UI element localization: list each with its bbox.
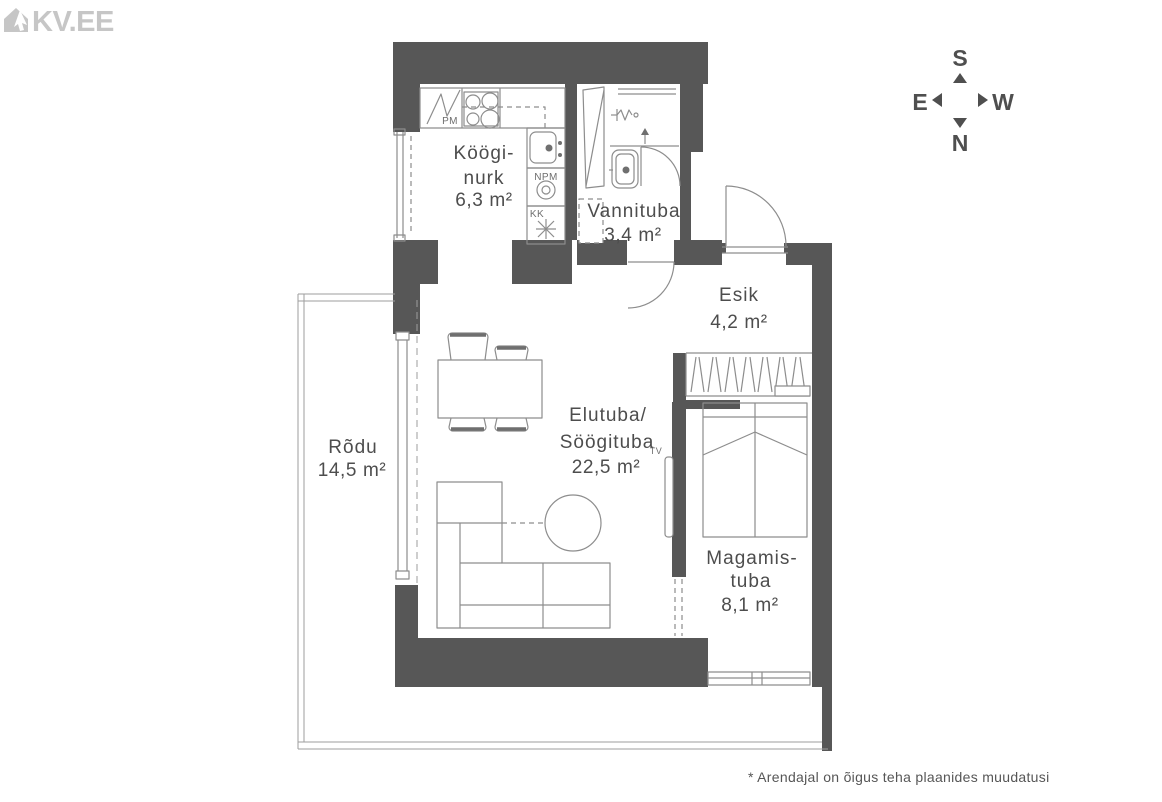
wall-living-bedroom-divider [672, 402, 686, 577]
hallway-label: Esik [719, 285, 759, 306]
balcony-door [396, 332, 409, 579]
bathroom-label: Vannituba [587, 201, 680, 222]
bedroom-sliding-opening [675, 579, 682, 636]
wall-bed-headboard-strip [677, 400, 740, 409]
fridge-snowflake-icon [536, 219, 556, 239]
disclaimer-text: * Arendajal on õigus teha plaanides muud… [748, 769, 1049, 785]
fridge-label: KK [530, 209, 544, 220]
balcony-label: Rõdu [328, 437, 377, 458]
wall-top [393, 42, 708, 84]
house-cursor-icon [4, 8, 28, 32]
bedroom-area: 8,1 m² [721, 595, 778, 616]
dishwasher-symbol [537, 181, 555, 199]
compass-south-label: S [952, 45, 967, 71]
entry-door-jamb-right [784, 243, 791, 253]
wall-living-west-upper [393, 284, 420, 334]
compass-east-label: E [912, 89, 927, 115]
compass-west-label: W [992, 89, 1014, 115]
dishwasher-label: NPM [534, 172, 557, 183]
wardrobe-shelf [775, 386, 810, 396]
wardrobe [686, 353, 812, 396]
kitchen-area: 6,3 m² [455, 190, 512, 211]
tv-panel [665, 457, 673, 537]
bed [703, 403, 807, 537]
chair [448, 333, 488, 360]
wall-bath-east-upper [680, 84, 703, 152]
wall-bath-east-lower [680, 152, 691, 243]
floorplan-svg: KV.EE [0, 0, 1162, 802]
wall-kitchen-south [512, 240, 572, 284]
bathroom-doorway-arc [628, 262, 674, 308]
balcony-area: 14,5 m² [318, 460, 387, 481]
entry-door-jamb-left [719, 243, 726, 253]
washing-machine-label: PM [442, 116, 458, 127]
dining-table [438, 360, 542, 418]
bathroom-door-arc [641, 147, 680, 186]
kitchen-window [394, 129, 411, 241]
wall-east [812, 255, 832, 687]
wall-wardrobe-west [673, 353, 686, 402]
kitchen-label-line1: Köögi- [454, 143, 515, 164]
arrow-head [641, 128, 649, 135]
entrance-door-arc [726, 186, 786, 246]
living-label-line1: Elutuba/ [569, 405, 647, 426]
compass-rose: S E W N [912, 45, 1014, 156]
wall-living-southwest-corner [395, 585, 418, 638]
kitchen-label-line2: nurk [464, 168, 505, 189]
living-label-line2: Söögituba [560, 432, 655, 453]
bathroom-faucet [623, 167, 630, 174]
coffee-table [545, 495, 601, 551]
bathroom-fixtures [609, 89, 680, 308]
compass-north-label: N [952, 130, 969, 156]
compass-down-triangle-icon [953, 118, 967, 128]
bedroom-label-line1: Magamis- [706, 548, 797, 569]
bathroom-area: 3,4 m² [604, 225, 661, 246]
compass-left-triangle-icon [932, 93, 942, 107]
floorplan-image: KV.EE [0, 0, 1162, 802]
kitchen-faucet [546, 145, 553, 152]
wall-kitchen-southwest [393, 240, 438, 284]
wall-living-south [395, 638, 708, 687]
tv-label: TV [650, 446, 663, 456]
wall-southeast-post [822, 687, 832, 751]
wall-kitchen-west [393, 84, 420, 132]
towel-radiator-icon [611, 109, 638, 121]
compass-up-triangle-icon [953, 73, 967, 83]
wall-kitchen-bath-divider [565, 84, 577, 240]
compass-right-triangle-icon [978, 93, 988, 107]
entrance-door [722, 186, 788, 253]
hallway-area: 4,2 m² [710, 312, 767, 333]
bedroom-window [708, 672, 810, 685]
kvee-logo: KV.EE [4, 6, 114, 38]
kitchen-counter [420, 88, 565, 244]
living-area: 22,5 m² [572, 457, 641, 478]
logo-text: KV.EE [32, 6, 114, 38]
bedroom-label-line2: tuba [731, 571, 772, 592]
dining-table-set [438, 333, 542, 431]
wall-bath-south-right [674, 240, 722, 265]
